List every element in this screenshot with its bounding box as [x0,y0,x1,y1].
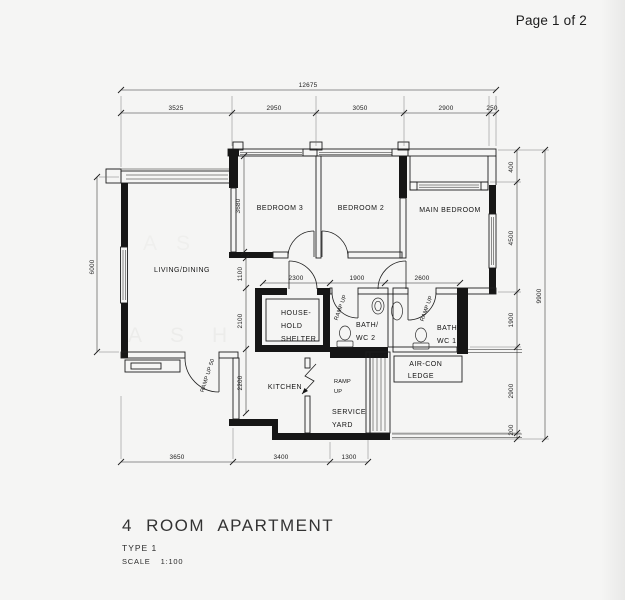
ramp-up-bath1-label: RAMP UP [420,295,435,322]
dimension-label: 12675 [299,82,318,89]
dimension-label: 3525 [168,105,183,112]
room-label-bath-wc2: BATH/ WC 2 [356,322,381,342]
dimension-label: 2900 [438,105,453,112]
dimension-label: 2950 [266,105,281,112]
plan-type: TYPE 1 [122,543,334,553]
dimension-label: 6000 [89,259,96,274]
dimension-label: 400 [508,161,515,173]
room-label-bedroom3: BEDROOM 3 [257,205,304,212]
ramp-up-service-label: RAMP UP [334,379,353,395]
dimension-label: 200 [508,424,515,436]
scale-label: SCALE [122,557,151,566]
walls-layer [106,142,522,440]
dimension-label: 2200 [237,375,244,390]
dimension-label: 250 [486,105,498,112]
dimension-label: 3050 [352,105,367,112]
page-edge-shadow [601,0,625,600]
dimension-ticks [94,87,548,465]
dimension-label: 2600 [414,275,429,282]
dimension-label: 3680 [235,198,242,213]
room-label-kitchen: KITCHEN [268,384,302,391]
ramp-up-bath2-label: RAMP UP [334,294,349,321]
dimension-label: 3650 [169,454,184,461]
room-label-main-bedroom: MAIN BEDROOM [419,207,481,214]
scale-value: 1:100 [161,557,184,566]
svg-text:A: A [128,324,142,347]
svg-text:S: S [170,324,184,347]
floor-plan-drawing: A S H L E A S [0,0,625,600]
plan-scale: SCALE1:100 [122,557,334,566]
svg-text:S: S [176,232,190,255]
dimension-label: 1300 [341,454,356,461]
document-page: Page 1 of 2 A S H L E A S [0,0,625,600]
dimension-label: 4500 [508,230,515,245]
dimension-label: 1900 [349,275,364,282]
ramp-up-entrance-label: RAMP UP 50 [200,358,217,393]
fixtures-layer [337,298,429,349]
dimension-label: 2300 [288,275,303,282]
dimension-label: 2900 [508,383,515,398]
room-label-service-yard: SERVICE YARD [332,409,369,429]
room-label-bedroom2: BEDROOM 2 [338,205,385,212]
dimension-label: 2100 [237,313,244,328]
room-label-aircon-ledge: AIR-CON LEDGE [408,361,445,380]
plan-title: 4 ROOM APARTMENT [122,516,334,536]
dimension-label: 3400 [273,454,288,461]
dimension-label: 1900 [508,312,515,327]
svg-text:H: H [212,324,227,347]
svg-text:A: A [143,232,157,255]
dimension-label: 1100 [237,266,244,281]
dimension-label: 9900 [536,288,543,303]
room-label-living-dining: LIVING/DINING [154,267,210,274]
title-block: 4 ROOM APARTMENT TYPE 1 SCALE1:100 [122,516,334,566]
